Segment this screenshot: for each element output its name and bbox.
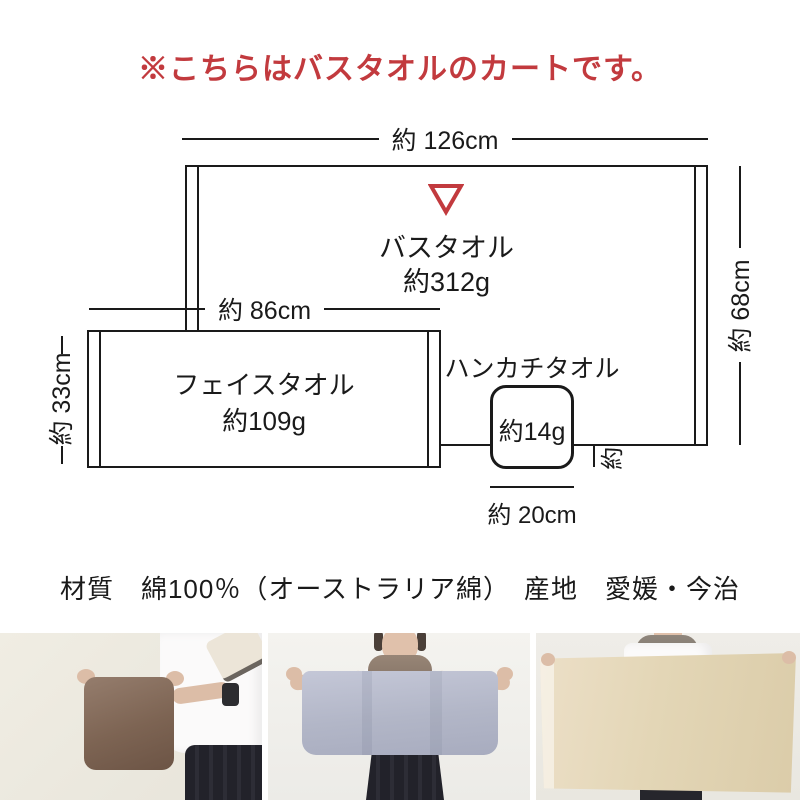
- towel-selvedge: [540, 653, 554, 794]
- dimension-line: [182, 138, 379, 140]
- towel-hem-line: [694, 167, 696, 444]
- face-towel-photo: [268, 633, 530, 800]
- dimension-line: [324, 308, 440, 310]
- bath-towel-width-label: 約 126cm: [379, 121, 512, 157]
- model-hand: [541, 653, 555, 666]
- model-hand: [286, 667, 302, 681]
- towel-size-diagram-page: ※こちらはバスタオルのカートです。 約 126cm バスタオル 約312g 約 …: [0, 0, 800, 800]
- dimension-line: [61, 446, 63, 464]
- face-towel-width-label: 約 86cm: [205, 291, 324, 327]
- cart-notice-text: ※こちらはバスタオルのカートです。: [0, 44, 800, 88]
- hand-towel-width-label: 約 20cm: [461, 495, 603, 530]
- pointer-triangle-icon: [428, 183, 464, 216]
- model-hand: [782, 651, 796, 664]
- model-skirt: [185, 745, 262, 800]
- material-origin-text: 材質 綿100％（オーストラリア綿） 産地 愛媛・今治: [0, 569, 800, 606]
- face-towel-label: フェイスタオル: [87, 365, 441, 402]
- face-towel-lavender: [302, 671, 498, 755]
- hand-towel-photo: [0, 633, 262, 800]
- model-hand: [497, 667, 513, 681]
- dimension-line: [739, 362, 741, 445]
- dimension-line: [89, 308, 205, 310]
- bath-towel-width-dimension: 約 126cm: [182, 127, 708, 151]
- hand-towel-weight: 約14g: [490, 412, 574, 448]
- towel-fold: [362, 671, 372, 755]
- dimension-line: [512, 138, 709, 140]
- bath-towel-photo: [536, 633, 800, 800]
- towel-fold: [430, 671, 442, 755]
- face-towel-weight: 約109g: [87, 401, 441, 438]
- model-skirt: [366, 749, 444, 800]
- wristwatch: [222, 683, 239, 706]
- model-hair: [417, 633, 426, 651]
- face-towel-width-dimension: 約 86cm: [89, 297, 440, 321]
- hand-towel-label: ハンカチタオル: [441, 349, 623, 385]
- dimension-line: [490, 486, 574, 488]
- bath-towel-beige: [540, 653, 796, 794]
- hand-towel-brown: [84, 677, 174, 770]
- bath-towel-height-label: 約 68cm: [728, 231, 754, 381]
